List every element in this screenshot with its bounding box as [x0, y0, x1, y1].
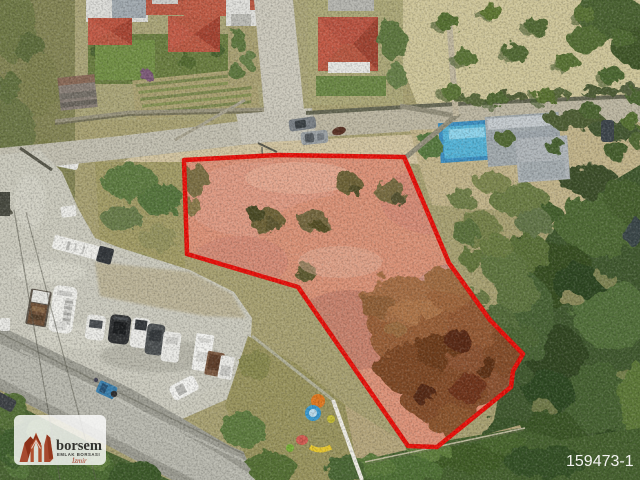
- svg-text:159473-1: 159473-1: [566, 453, 634, 470]
- svg-text:İzmir: İzmir: [71, 457, 87, 465]
